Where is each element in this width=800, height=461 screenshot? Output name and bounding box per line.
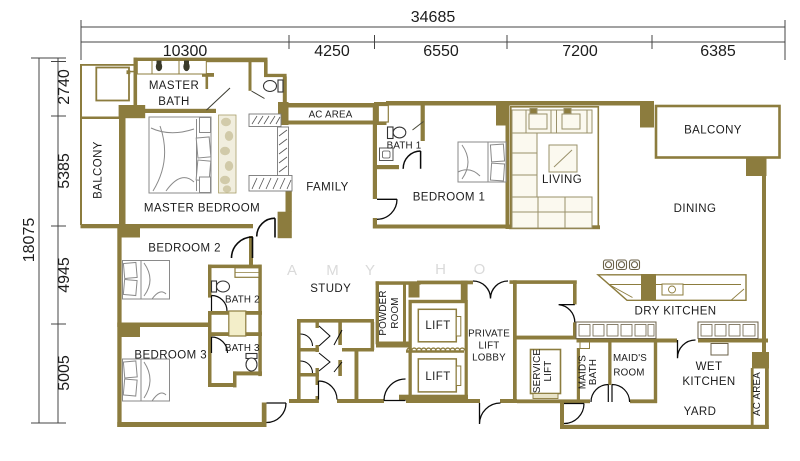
- svg-text:BEDROOM 3: BEDROOM 3: [134, 350, 207, 362]
- svg-text:BEDROOM 2: BEDROOM 2: [148, 243, 221, 255]
- svg-text:BATH 3: BATH 3: [225, 343, 260, 354]
- svg-text:MAID'S: MAID'S: [578, 355, 589, 389]
- svg-text:STUDY: STUDY: [310, 283, 351, 295]
- svg-text:YARD: YARD: [684, 406, 717, 418]
- svg-text:BATH: BATH: [588, 359, 599, 385]
- svg-text:ROOM: ROOM: [613, 368, 644, 379]
- svg-text:DINING: DINING: [674, 203, 717, 215]
- svg-text:ROOM: ROOM: [390, 297, 401, 328]
- svg-text:LIVING: LIVING: [542, 174, 582, 186]
- svg-text:6385: 6385: [700, 43, 736, 60]
- svg-text:KITCHEN: KITCHEN: [682, 376, 735, 388]
- svg-text:4945: 4945: [56, 257, 73, 293]
- svg-text:DRY KITCHEN: DRY KITCHEN: [635, 306, 717, 318]
- svg-text:5005: 5005: [56, 355, 73, 391]
- svg-text:AC AREA: AC AREA: [309, 110, 353, 121]
- svg-text:POWDER: POWDER: [378, 290, 389, 335]
- svg-text:FAMILY: FAMILY: [306, 182, 348, 194]
- svg-text:MASTER BEDROOM: MASTER BEDROOM: [144, 203, 260, 215]
- svg-text:WET: WET: [696, 361, 723, 373]
- svg-text:18075: 18075: [21, 218, 38, 263]
- svg-text:4250: 4250: [314, 43, 350, 60]
- svg-text:5385: 5385: [56, 153, 73, 189]
- svg-text:MASTER: MASTER: [149, 80, 199, 92]
- svg-text:BATH 2: BATH 2: [225, 295, 260, 306]
- svg-text:34685: 34685: [411, 9, 456, 26]
- svg-text:Y: Y: [365, 262, 377, 279]
- svg-text:A: A: [287, 262, 299, 279]
- svg-text:LOBBY: LOBBY: [472, 353, 506, 364]
- svg-text:M: M: [326, 262, 341, 279]
- svg-text:AC AREA: AC AREA: [752, 372, 763, 416]
- svg-text:LIFT: LIFT: [479, 341, 500, 352]
- svg-text:LIFT: LIFT: [543, 361, 554, 382]
- svg-text:7200: 7200: [562, 43, 598, 60]
- svg-text:BALCONY: BALCONY: [93, 141, 105, 199]
- svg-text:BATH 1: BATH 1: [387, 141, 422, 152]
- svg-text:SERVICE: SERVICE: [532, 349, 543, 393]
- svg-text:O: O: [474, 261, 488, 278]
- svg-text:PRIVATE: PRIVATE: [468, 329, 510, 340]
- svg-text:BATH: BATH: [158, 96, 189, 108]
- svg-text:MAID'S: MAID'S: [613, 353, 647, 364]
- svg-text:H: H: [435, 261, 448, 278]
- svg-text:LIFT: LIFT: [425, 320, 450, 332]
- svg-text:LIFT: LIFT: [425, 371, 450, 383]
- svg-text:2740: 2740: [56, 69, 73, 105]
- svg-text:6550: 6550: [423, 43, 459, 60]
- svg-text:BALCONY: BALCONY: [684, 125, 742, 137]
- svg-text:BEDROOM 1: BEDROOM 1: [413, 192, 486, 204]
- svg-text:10300: 10300: [163, 43, 208, 60]
